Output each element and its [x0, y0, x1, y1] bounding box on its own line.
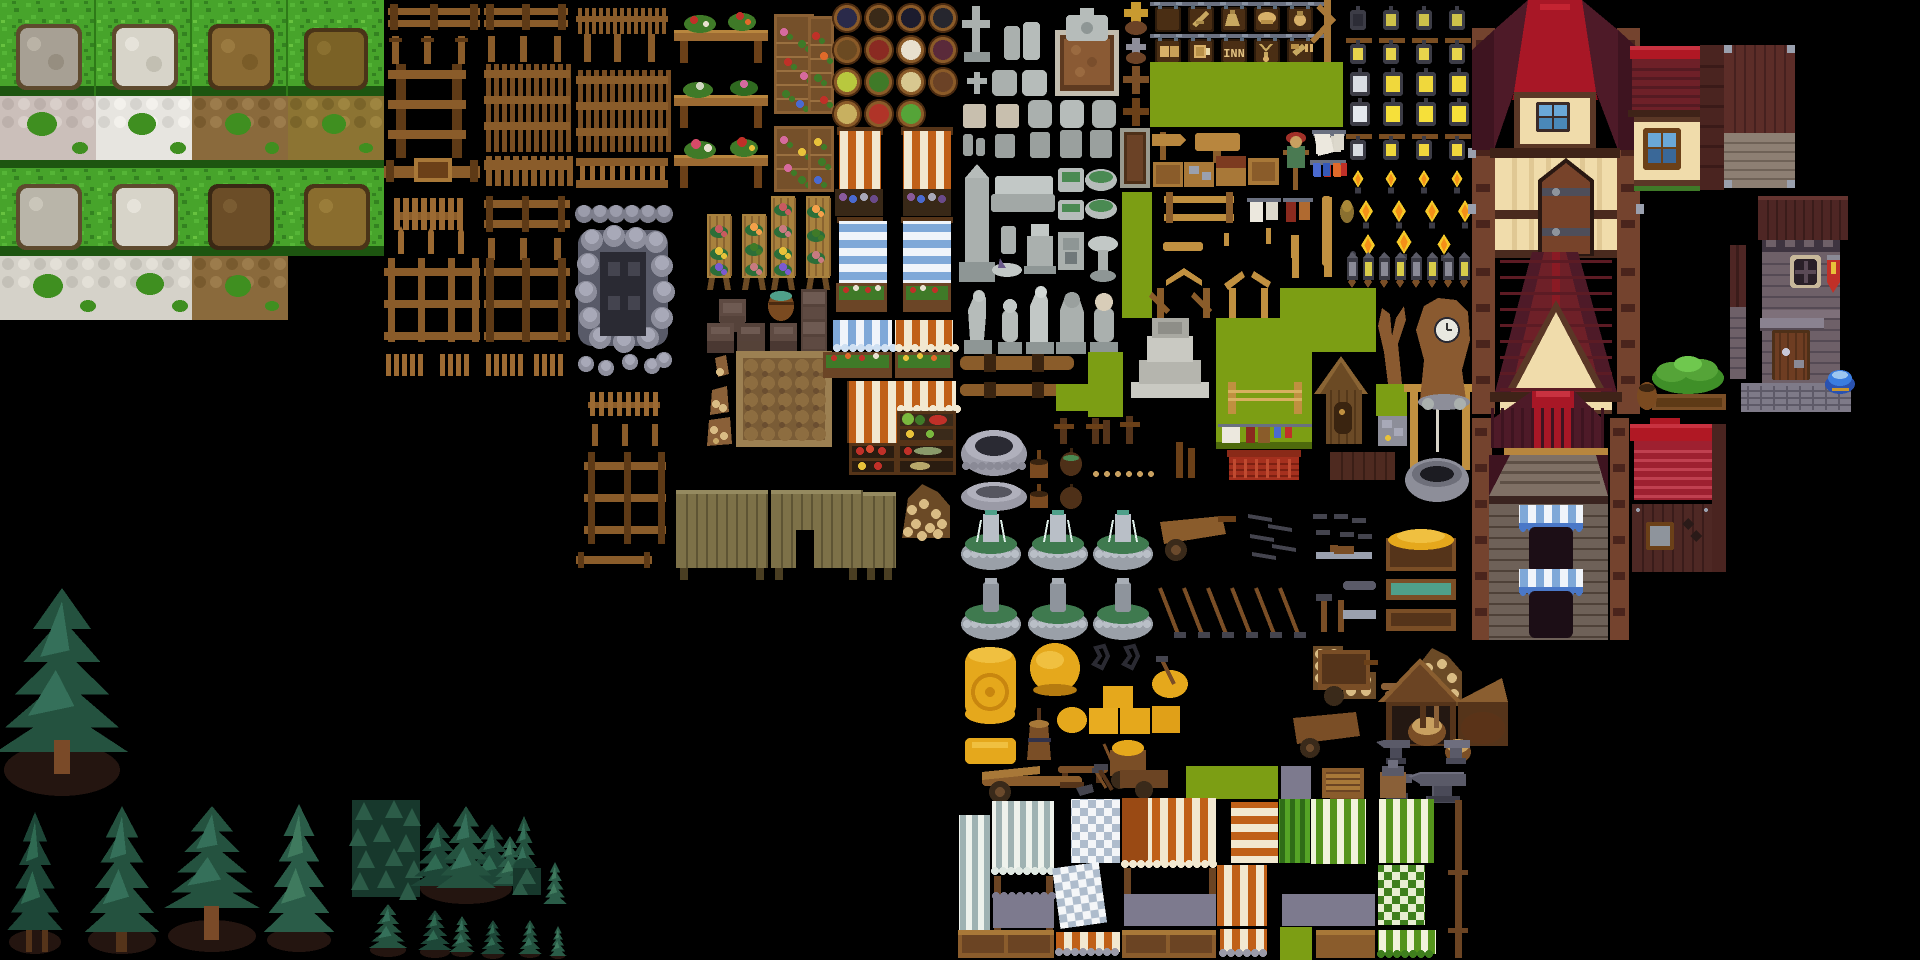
svg-text:INN: INN	[1223, 47, 1245, 61]
